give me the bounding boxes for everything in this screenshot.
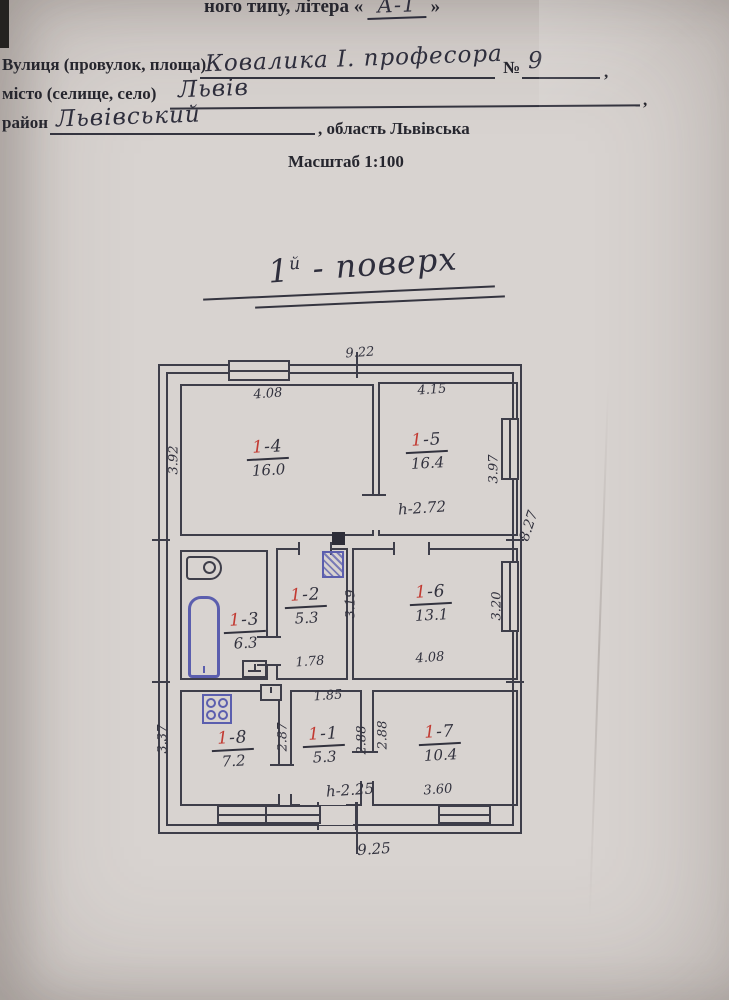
region-label: , область Львівська [318,119,470,139]
dim-1-4-top: 4.08 [253,386,283,403]
dim-overall-top: 9.22 [345,345,375,362]
dim-overall-bottom: 9.25 [357,839,392,859]
room-number: -3 [241,609,261,630]
room-1-8-label: 1-8 7.2 [211,727,256,771]
window-room-1-8-a [217,805,269,824]
room-number: -4 [264,436,284,457]
room-number-red: 1 [290,585,303,606]
floor-plan: 9.22 8.27 9.25 1-4 16.0 4.08 3.92 1-5 16… [150,346,542,878]
room-area: 5.3 [285,607,328,628]
dimension-tick [152,681,170,683]
district-underline [50,133,315,135]
dim-1-2-bottom: 1.78 [295,654,325,671]
door-opening-1-1-1-7 [355,753,375,781]
window-room-1-7 [438,805,491,824]
dim-1-8-left: 3.37 [156,725,171,754]
floor-title-underline-2 [255,295,505,308]
room-area: 6.3 [224,632,267,653]
gas-stove-icon [202,694,232,724]
floor-title: 1й - поверх [267,239,459,290]
toilet-icon [242,660,267,678]
door-opening-1-4-1-5 [367,496,381,530]
bathtub-icon [188,596,220,678]
room-area: 16.4 [406,452,449,473]
dim-1-1-left: 2.88 [355,726,370,755]
room-number: -2 [302,584,322,605]
district-label: район [2,113,48,133]
room-area: 10.4 [419,744,462,765]
scan-edge-artifact [0,0,9,48]
building-type-line: ного типу, літера « А-1 » [204,0,440,19]
room-number-red: 1 [217,728,230,749]
furnace-icon [322,551,344,578]
room-area: 16.0 [247,459,290,480]
dim-1-5-right: 3.97 [487,455,502,484]
room-number-red: 1 [229,610,242,631]
street-label: Вулиця (провулок, площа) [2,55,206,75]
room-number: -7 [436,721,456,742]
room-number-red: 1 [424,722,437,743]
bath-sink-icon [186,556,222,580]
dim-1-8-right: 2.87 [276,723,291,752]
floor-title-sup: й [288,254,301,275]
city-label: місто (селище, село) [2,84,156,104]
room-number: -1 [320,723,340,744]
dim-1-2-right: 3.19 [344,590,359,619]
window-room-1-5 [501,418,519,480]
room-1-6-label: 1-6 13.1 [409,581,454,625]
room-area: 7.2 [212,750,255,771]
dim-1-5-top: 4.15 [417,382,447,399]
room-area: 5.3 [303,746,346,767]
door-jamb-tick [428,542,430,555]
height-note-1-5: h-2.72 [397,497,446,518]
city-value: Львів [178,75,250,103]
dimension-tick [152,539,170,541]
street-value: Ковалика І. професора [205,41,504,77]
room-1-3-label: 1-3 6.3 [223,609,268,653]
dim-1-6-bottom: 4.08 [415,650,445,667]
dimension-tick [506,681,524,683]
dim-1-1-right: 2.88 [376,721,391,750]
house-number-label: № [503,58,520,78]
room-1-7-label: 1-7 10.4 [418,721,463,765]
room-number-red: 1 [252,437,265,458]
room-number: -6 [427,581,447,602]
dim-1-1-top: 1.85 [313,688,343,705]
building-type-close-quote: » [431,0,441,17]
room-number: -5 [423,429,443,450]
room-number-red: 1 [411,430,424,451]
height-note-1-1: h-2.25 [325,779,374,800]
dim-1-6-right: 3.20 [490,592,505,621]
district-value: Львівський [56,101,201,132]
room-area: 13.1 [410,604,453,625]
room-1-2-label: 1-2 5.3 [284,584,329,628]
building-letter-value: А-1 [367,0,427,20]
vent-shaft-icon [228,360,290,381]
room-number: -8 [229,727,249,748]
door-jamb-tick [362,494,386,496]
paper-crease [589,380,610,920]
door-opening-1-8-1-1 [273,766,293,794]
entrance-wall-gap [319,819,353,825]
scanned-document-page: ного типу, літера « А-1 » Вулиця (провул… [0,0,729,1000]
room-1-5-label: 1-5 16.4 [405,429,450,473]
floor-title-text: - поверх [311,239,458,287]
room-1-4-label: 1-4 16.0 [246,436,291,480]
room-number-red: 1 [308,724,321,745]
scale-label: Масштаб 1:100 [288,152,404,172]
room-1-1-label: 1-1 5.3 [302,723,347,767]
dim-1-4-left: 3.92 [167,446,182,475]
window-room-1-8-b [265,805,321,824]
building-type-label: ного типу, літера « [204,0,363,17]
door-jamb-tick [270,764,294,766]
door-jamb-tick [393,542,395,555]
door-opening-1-6 [395,546,428,552]
kitchen-sink-icon [260,684,282,701]
dim-1-7-bottom: 3.60 [423,782,453,799]
room-number-red: 1 [415,582,428,603]
door-jamb-tick [298,542,300,555]
chimney-icon [332,532,345,545]
paper-fold-highlight [539,0,729,110]
